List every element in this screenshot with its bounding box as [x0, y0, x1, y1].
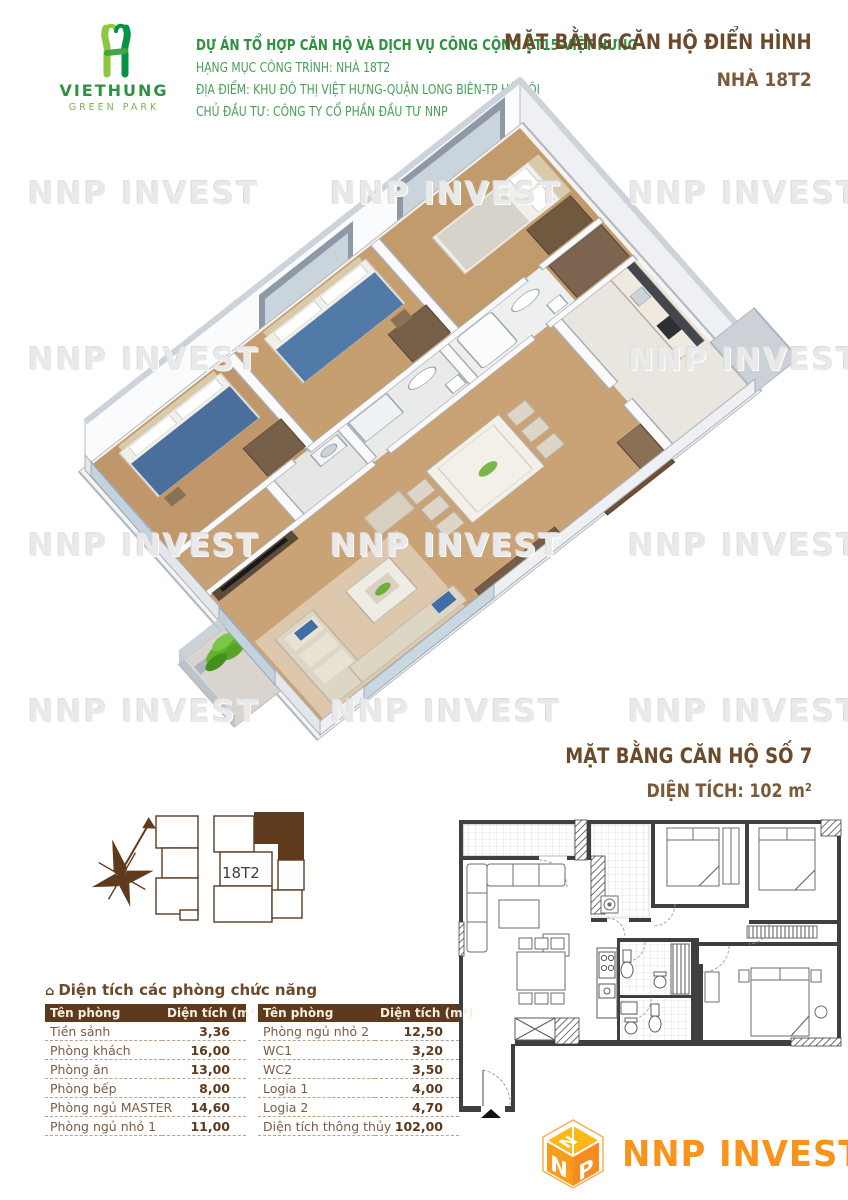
- table-row: Phòng khách16,00: [45, 1041, 246, 1060]
- room-name: Diện tích thông thủy: [258, 1117, 375, 1136]
- room-area: 12,50: [375, 1022, 459, 1041]
- table-row: Phòng ăn13,00: [45, 1060, 246, 1079]
- room-area: 3,36: [162, 1022, 246, 1041]
- room-name: Phòng khách: [45, 1041, 162, 1060]
- watermark: NNP INVEST: [330, 528, 562, 564]
- room-area: 11,00: [162, 1117, 246, 1136]
- building-left-outline: [156, 816, 198, 920]
- watermark: NNP INVEST: [628, 528, 848, 564]
- room-name: WC2: [258, 1060, 375, 1079]
- watermark: NNP INVEST: [28, 342, 260, 378]
- watermark: NNP INVEST: [628, 342, 848, 378]
- watermark: NNP INVEST: [330, 694, 562, 730]
- table-row: Phòng bếp8,00: [45, 1079, 246, 1098]
- brochure-page: NNP INVEST NNP INVEST NNP INVEST NNP INV…: [0, 0, 848, 1200]
- washer-icon: [601, 896, 618, 913]
- area-table-right: Tên phòng Diện tích (m²) Phòng ngủ nhỏ 2…: [258, 1004, 459, 1136]
- area-table-title: ⌂Diện tích các phòng chức năng: [45, 981, 459, 999]
- table-row: Logia 24,70: [258, 1098, 459, 1117]
- room-area: 3,20: [375, 1041, 459, 1060]
- floorplan-3d: [0, 0, 848, 770]
- table-row: WC13,20: [258, 1041, 459, 1060]
- table-row: Diện tích thông thủy102,00: [258, 1117, 459, 1136]
- balcony-1: [463, 824, 575, 856]
- house-icon: ⌂: [45, 984, 54, 999]
- area-table-left: Tên phòng Diện tích (m²) Tiền sảnh3,36 P…: [45, 1004, 246, 1136]
- col-header-area: Diện tích (m²): [375, 1004, 459, 1022]
- room-area: 8,00: [162, 1079, 246, 1098]
- room-name: Tiền sảnh: [45, 1022, 162, 1041]
- room-area: 3,50: [375, 1060, 459, 1079]
- watermark: NNP INVEST: [628, 694, 848, 730]
- nnp-cube-icon: N N P: [536, 1116, 610, 1192]
- room-name: Phòng ăn: [45, 1060, 162, 1079]
- bed-2d: [667, 828, 739, 886]
- bed-2d-master: [705, 968, 827, 1036]
- room-name: WC1: [258, 1041, 375, 1060]
- building-label: 18T2: [222, 864, 260, 882]
- room-area: 13,00: [162, 1060, 246, 1079]
- unit7-title-block: MẶT BẰNG CĂN HỘ SỐ 7 DIỆN TÍCH: 102 m²: [525, 744, 812, 802]
- table-row: Tiền sảnh3,36: [45, 1022, 246, 1041]
- room-name: Logia 1: [258, 1079, 375, 1098]
- room-name: Phòng ngủ nhỏ 2: [258, 1022, 375, 1041]
- watermark: NNP INVEST: [628, 176, 848, 212]
- floorplan-2d: [455, 812, 847, 1120]
- col-header-name: Tên phòng: [258, 1004, 375, 1022]
- unit7-area: DIỆN TÍCH: 102 m²: [647, 780, 812, 802]
- col-header-name: Tên phòng: [45, 1004, 162, 1022]
- watermark: NNP INVEST: [330, 176, 562, 212]
- table-row: Phòng ngủ nhỏ 212,50: [258, 1022, 459, 1041]
- room-name: Phòng ngủ MASTER: [45, 1098, 162, 1117]
- area-table-section: ⌂Diện tích các phòng chức năng Tên phòng…: [45, 981, 459, 1136]
- nnp-invest-wordmark: NNP INVEST: [622, 1134, 848, 1175]
- room-name: Phòng ngủ nhỏ 1: [45, 1117, 162, 1136]
- room-area: 14,60: [162, 1098, 246, 1117]
- keyplan: B 18T2: [82, 792, 322, 962]
- room-area: 16,00: [162, 1041, 246, 1060]
- table-row: Phòng ngủ MASTER14,60: [45, 1098, 246, 1117]
- room-area: 4,00: [375, 1079, 459, 1098]
- table-row: Logia 14,00: [258, 1079, 459, 1098]
- room-name: Logia 2: [258, 1098, 375, 1117]
- watermark: NNP INVEST: [28, 528, 260, 564]
- table-row: Phòng ngủ nhỏ 111,00: [45, 1117, 246, 1136]
- col-header-area: Diện tích (m²): [162, 1004, 246, 1022]
- entrance-arrow-icon: [481, 1109, 501, 1118]
- unit7-title: MẶT BẰNG CĂN HỘ SỐ 7: [565, 744, 812, 768]
- nnp-invest-logo: N N P NNP INVEST: [536, 1116, 848, 1192]
- watermark: NNP INVEST: [28, 694, 260, 730]
- table-row: WC23,50: [258, 1060, 459, 1079]
- dining-table: [517, 938, 565, 1004]
- watermark: NNP INVEST: [28, 176, 260, 212]
- room-name: Phòng bếp: [45, 1079, 162, 1098]
- room-area: 4,70: [375, 1098, 459, 1117]
